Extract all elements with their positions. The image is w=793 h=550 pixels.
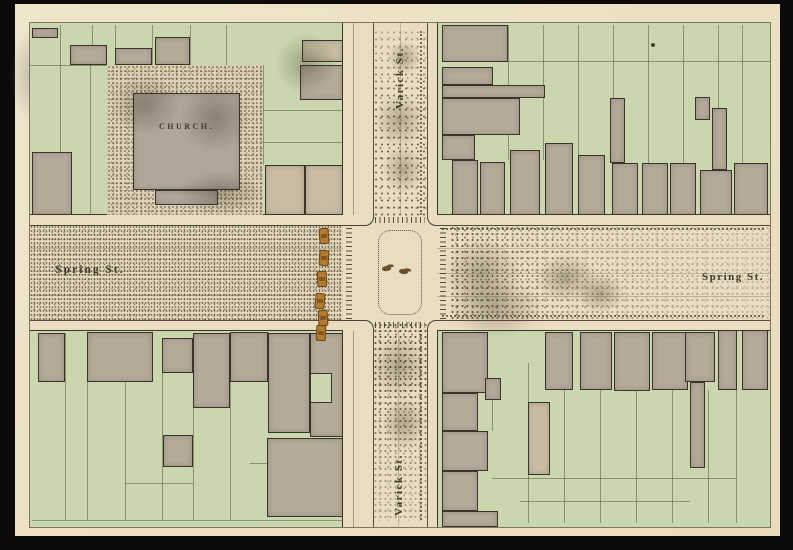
building: [485, 378, 501, 400]
lot-line: [708, 390, 709, 523]
building: [442, 471, 478, 511]
lot-line: [250, 463, 267, 464]
building: [578, 155, 605, 215]
lot-line: [65, 333, 66, 520]
building: [268, 333, 310, 433]
ink-spot: [651, 43, 655, 47]
building: [685, 332, 715, 382]
wash-patch: [382, 397, 426, 449]
wash-patch: [575, 273, 625, 313]
building: [612, 163, 638, 215]
building: [642, 163, 668, 215]
lot-line: [648, 25, 649, 163]
wash-patch: [382, 145, 424, 193]
curb-line: [373, 23, 374, 215]
lot-line: [190, 25, 191, 65]
building: [528, 402, 550, 475]
building: [700, 170, 732, 215]
wash-patch: [178, 171, 262, 215]
building: [742, 330, 768, 390]
building: [193, 333, 230, 408]
building: [442, 85, 545, 98]
building: [32, 152, 72, 215]
building: [163, 435, 193, 467]
building: [610, 98, 625, 163]
crosswalk-south: [375, 322, 425, 328]
building: [480, 162, 505, 215]
church-label: CHURCH.: [133, 122, 240, 131]
lot-line: [578, 25, 579, 155]
corner-curb-nw: [343, 215, 374, 226]
corner-curb-sw: [343, 320, 374, 331]
curb-line: [30, 225, 343, 226]
building: [712, 108, 727, 170]
yard-inset: [310, 373, 332, 403]
building: [32, 28, 58, 38]
building: [230, 332, 268, 382]
building: [545, 143, 573, 215]
map-canvas: CHURCH. Varick St. Varick St. Spring St.…: [30, 23, 770, 527]
building: [614, 332, 650, 391]
lot-line: [152, 25, 153, 65]
lot-line: [263, 65, 264, 165]
varick-street-label-north: Varick St.: [394, 42, 406, 114]
crosswalk-west: [346, 226, 352, 319]
corner-curb-ne: [427, 215, 438, 226]
map-sheet-paper: CHURCH. Varick St. Varick St. Spring St.…: [15, 4, 780, 536]
lot-line: [193, 408, 194, 520]
building: [510, 150, 540, 215]
building: [670, 163, 696, 215]
horse-cart: [314, 293, 326, 310]
lot-line: [475, 61, 770, 62]
photo-frame: CHURCH. Varick St. Varick St. Spring St.…: [0, 0, 793, 550]
lot-line: [600, 390, 601, 523]
wash-patch: [370, 335, 428, 397]
lot-line: [742, 25, 743, 163]
horse-cart: [318, 228, 329, 245]
building: [267, 438, 343, 517]
lot-line: [736, 390, 737, 523]
curb-line: [427, 23, 428, 215]
lot-line: [263, 110, 343, 111]
horse-cart: [318, 250, 329, 267]
building: [155, 37, 190, 65]
crosswalk-north: [375, 217, 425, 223]
building: [442, 332, 488, 393]
building: [695, 97, 710, 120]
lot-line: [230, 382, 231, 520]
building: [162, 338, 193, 373]
building: [452, 160, 478, 215]
spring-street-label-west: Spring St.: [44, 264, 136, 276]
lot-line: [492, 478, 736, 479]
roadway-guide-line: [30, 248, 343, 249]
building: [442, 511, 498, 527]
wash-patch: [180, 83, 250, 153]
building: [718, 330, 737, 390]
building: [38, 333, 65, 382]
building: [70, 45, 107, 65]
sidewalk-vault-line: [353, 330, 354, 527]
building: [734, 163, 768, 215]
sidewalk-vault-line: [353, 23, 354, 215]
building: [442, 25, 508, 62]
building: [265, 165, 305, 215]
building: [87, 332, 153, 382]
wash-patch: [448, 278, 543, 338]
building: [545, 332, 573, 390]
building: [305, 165, 343, 215]
lot-line: [30, 65, 107, 66]
lot-line: [683, 25, 684, 163]
lot-line: [125, 483, 193, 484]
building: [442, 393, 478, 431]
wash-patch: [275, 33, 337, 95]
gutter-dots: [442, 228, 764, 230]
curb-line: [437, 225, 770, 226]
building: [580, 332, 612, 390]
horse-cart: [317, 271, 328, 288]
horse-cart: [317, 310, 328, 327]
building: [115, 48, 152, 65]
horse-cart: [316, 325, 327, 342]
varick-street-label-south: Varick St.: [393, 449, 405, 521]
lot-line: [87, 382, 88, 520]
building: [442, 67, 493, 85]
lot-line: [90, 65, 91, 215]
lot-line: [263, 142, 343, 143]
curb-line: [30, 320, 343, 321]
lot-line: [32, 520, 343, 521]
horse-figure: [399, 269, 408, 275]
lot-line: [60, 25, 61, 65]
building: [442, 98, 520, 135]
roadway-guide-line: [30, 295, 343, 296]
building: [690, 382, 705, 468]
lot-line: [520, 501, 690, 502]
lot-line: [226, 25, 227, 65]
building: [652, 332, 688, 390]
lot-line: [672, 390, 673, 523]
spring-street-label-east: Spring St.: [702, 271, 762, 283]
building: [442, 431, 488, 471]
building: [442, 135, 475, 160]
